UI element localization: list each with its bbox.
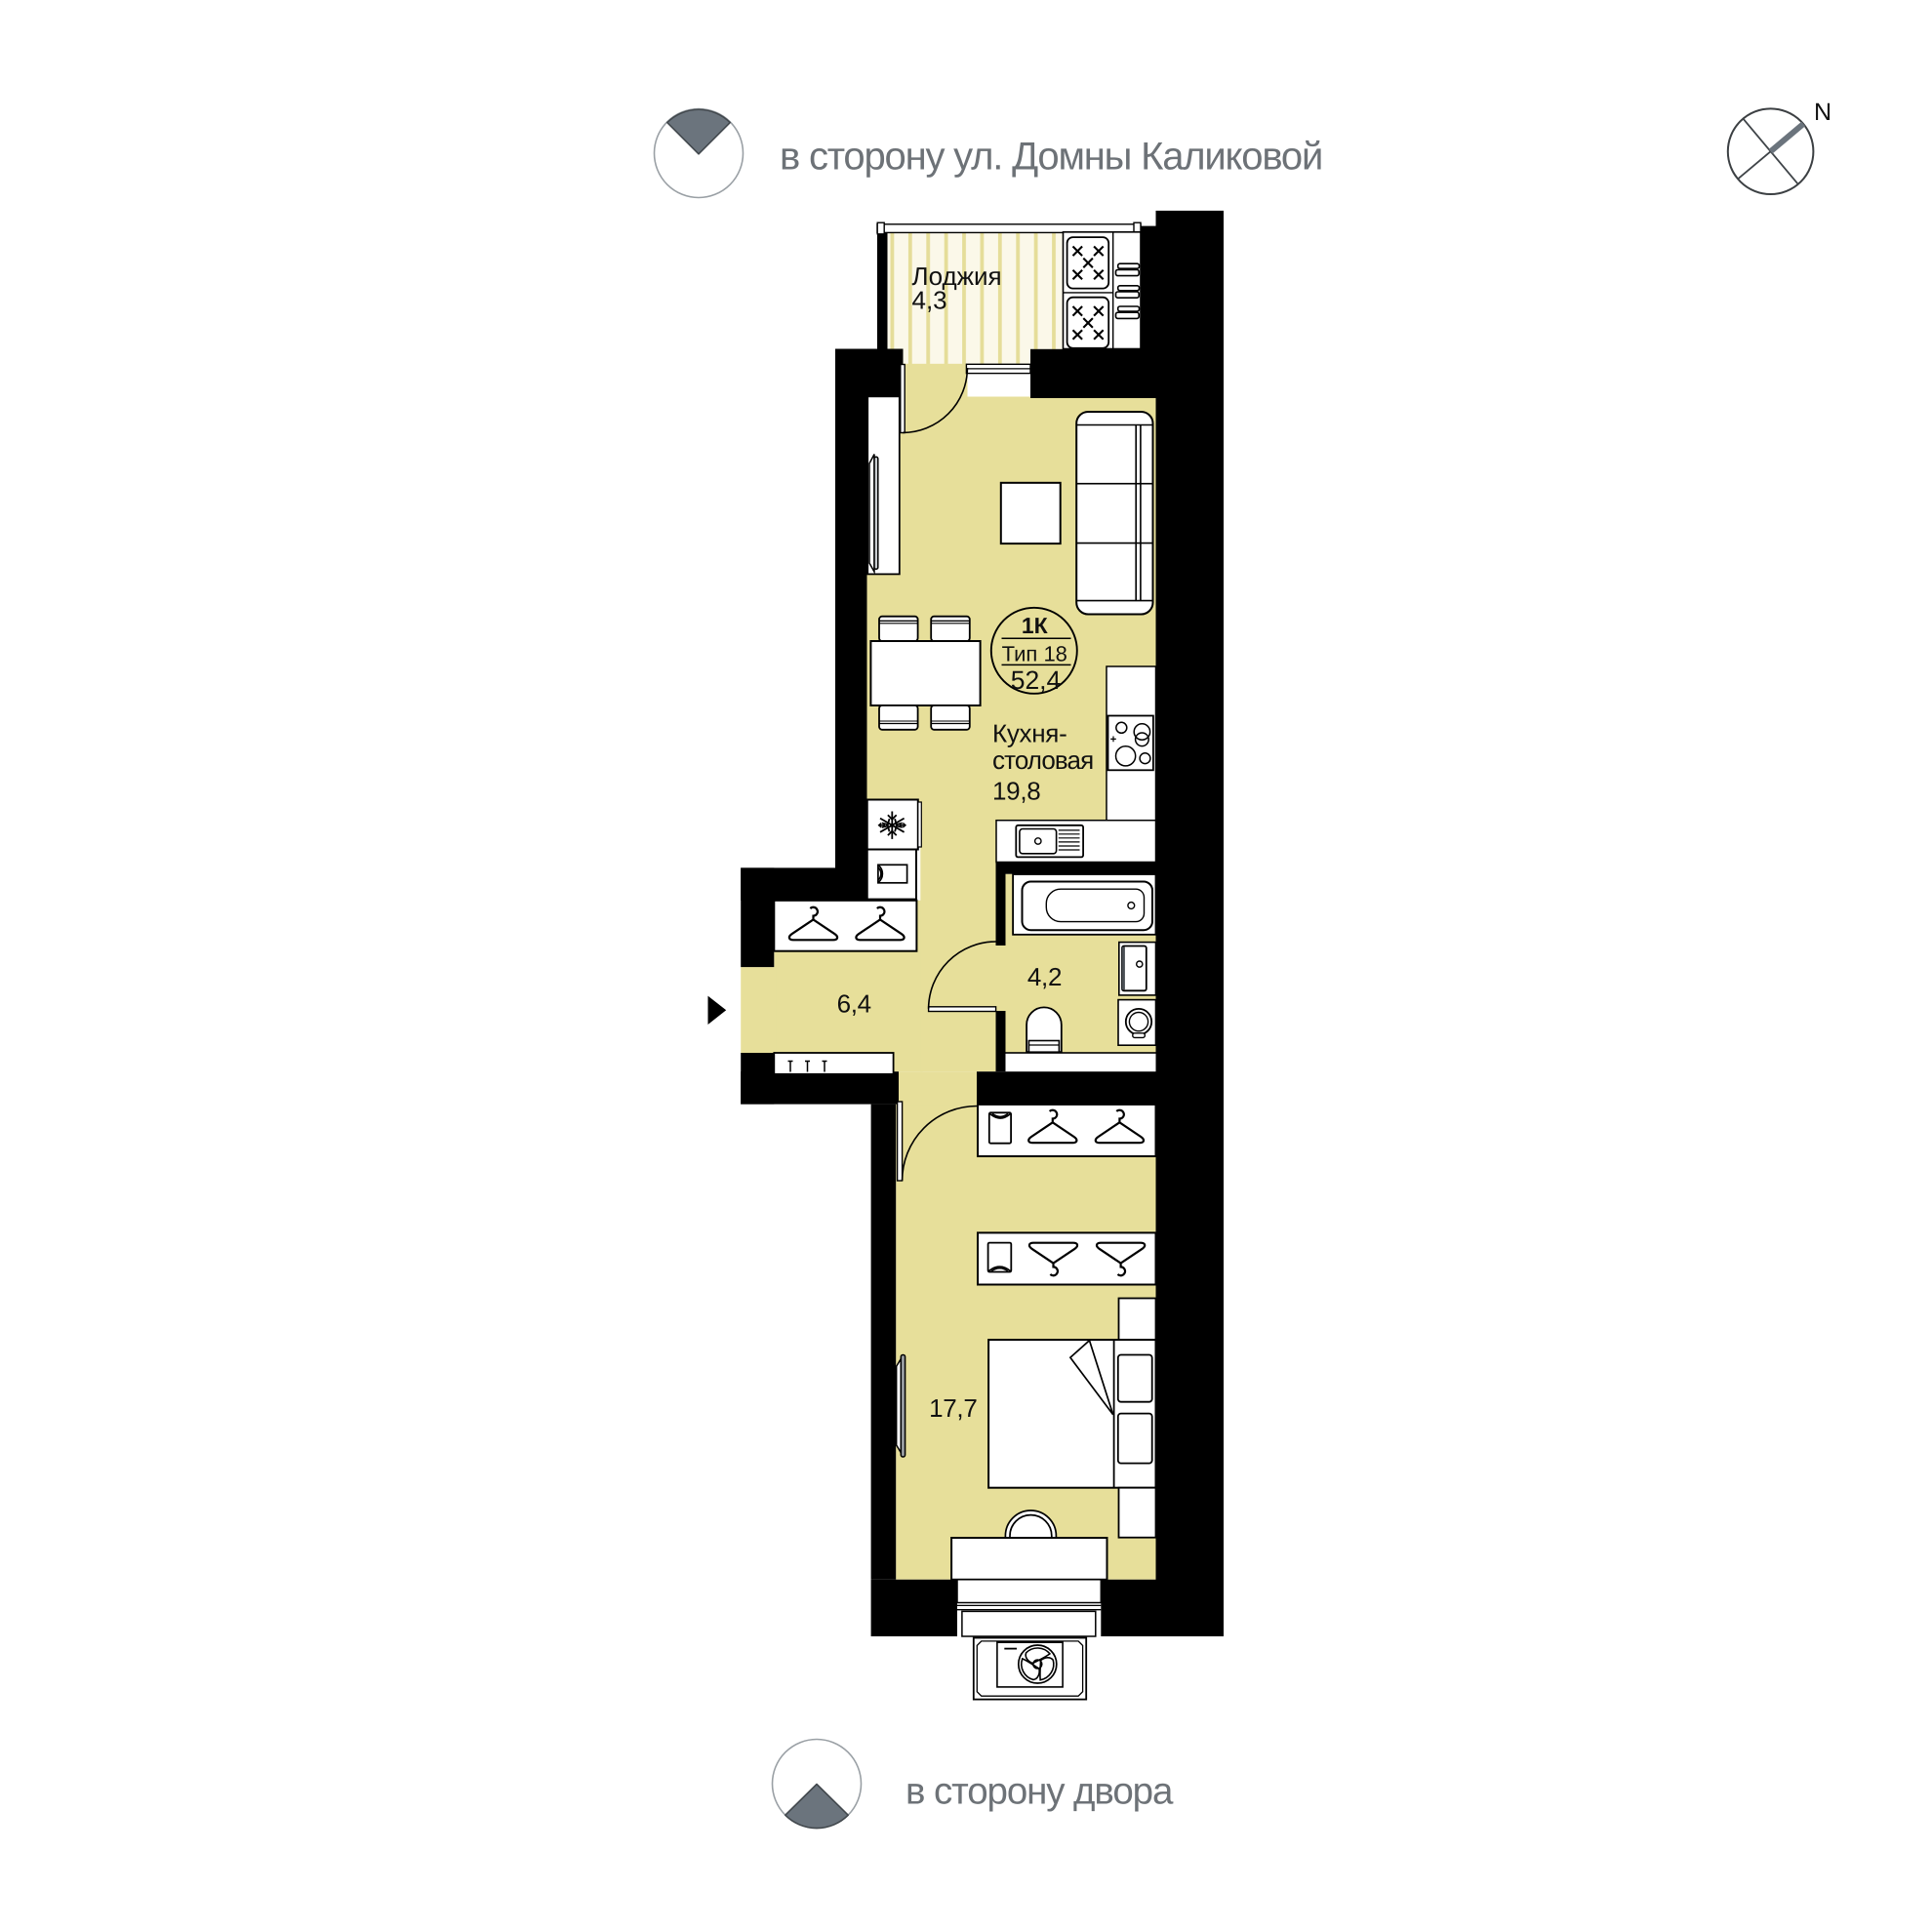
svg-text:6,4: 6,4: [837, 989, 871, 1019]
svg-text:52,4: 52,4: [1011, 665, 1062, 695]
svg-text:17,7: 17,7: [929, 1393, 977, 1423]
svg-text:Кухня-: Кухня-: [992, 718, 1067, 747]
svg-text:N: N: [1814, 99, 1831, 126]
svg-text:4,2: 4,2: [1027, 962, 1062, 991]
svg-text:19,8: 19,8: [992, 776, 1040, 805]
svg-text:в сторону двора: в сторону двора: [906, 1771, 1174, 1813]
svg-text:4,3: 4,3: [912, 286, 947, 315]
svg-text:Тип 18: Тип 18: [1002, 642, 1067, 666]
svg-text:в сторону ул. Домны Каликовой: в сторону ул. Домны Каликовой: [780, 136, 1322, 179]
svg-text:1К: 1К: [1022, 613, 1049, 638]
svg-text:столовая: столовая: [992, 745, 1093, 775]
